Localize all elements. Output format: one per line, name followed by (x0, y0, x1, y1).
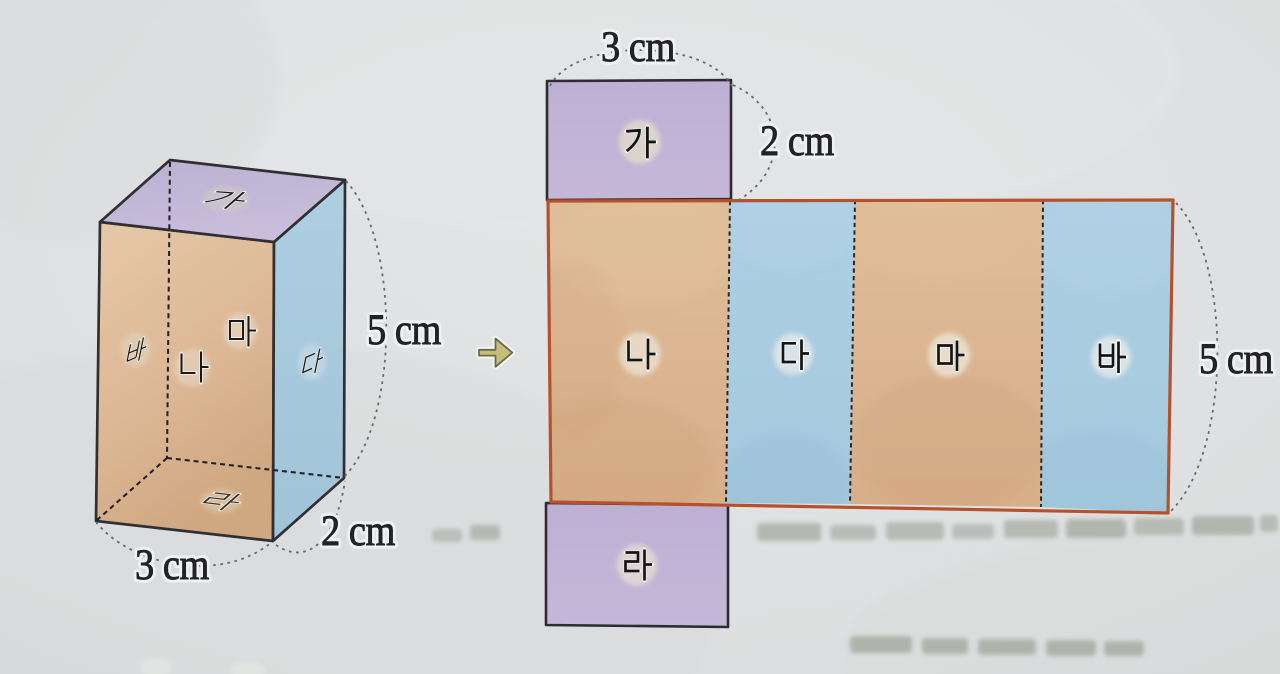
svg-text:3 cm: 3 cm (135, 542, 209, 589)
svg-text:3 cm: 3 cm (601, 24, 675, 71)
svg-text:2 cm: 2 cm (321, 508, 395, 555)
svg-text:2 cm: 2 cm (760, 118, 834, 165)
svg-text:5 cm: 5 cm (1199, 336, 1273, 383)
svg-text:5 cm: 5 cm (367, 307, 441, 354)
